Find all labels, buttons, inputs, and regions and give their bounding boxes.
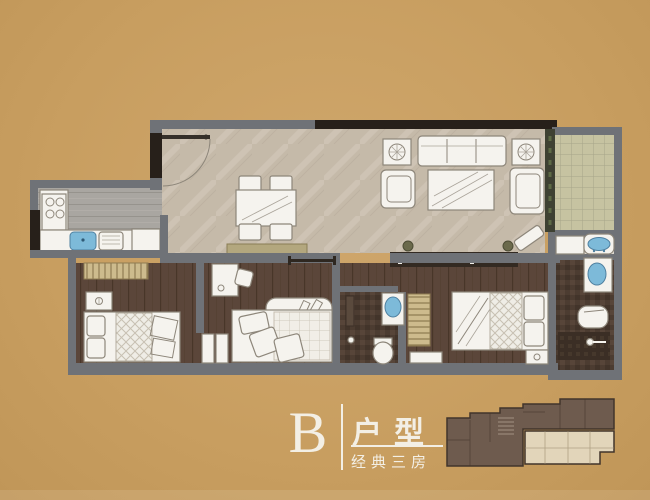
door-leaf	[162, 135, 210, 139]
sliding-door-track	[288, 259, 336, 262]
floor-decor	[503, 241, 513, 251]
key-plan-other-units	[525, 431, 614, 464]
bathtub-water	[588, 238, 610, 251]
wardrobe	[408, 294, 430, 346]
pillow	[524, 322, 544, 346]
balcony-glass-door	[545, 129, 555, 232]
drain	[348, 337, 354, 343]
dining-chair	[270, 224, 292, 240]
floor-decor	[403, 241, 413, 251]
unit-letter: B	[278, 398, 338, 468]
floor-plan	[30, 120, 622, 380]
low-cabinet	[216, 334, 228, 363]
sideboard	[227, 244, 307, 254]
wardrobe	[84, 263, 148, 279]
key-plan	[447, 399, 614, 466]
dining-table	[236, 190, 296, 226]
vertical-divider	[341, 404, 343, 470]
horizontal-divider	[351, 445, 443, 447]
sofa-three-seat	[418, 136, 506, 166]
pillow	[87, 338, 105, 358]
shower-head-icon	[587, 339, 594, 346]
balcony-floor	[555, 135, 614, 232]
pillow	[87, 316, 105, 336]
bathtub-room	[556, 234, 614, 254]
toilet	[373, 342, 393, 364]
nightstand	[526, 350, 548, 364]
kitchen-fridge	[132, 229, 160, 251]
quilt	[116, 313, 152, 361]
dining-chair	[239, 224, 261, 240]
low-cabinet	[202, 334, 214, 363]
poster-background: B 户型 经典三房	[0, 0, 650, 500]
sink-basin	[588, 263, 606, 285]
bench	[410, 352, 442, 363]
toilet	[578, 306, 608, 328]
desk	[212, 264, 238, 296]
tub-counter	[556, 236, 584, 254]
plant-icon	[389, 144, 405, 160]
sink-basin	[385, 297, 401, 317]
desk-chair	[234, 268, 253, 287]
pillow	[524, 296, 544, 320]
quilt	[490, 293, 522, 349]
unit-subtitle: 经典三房	[351, 451, 431, 472]
shower-area	[558, 332, 610, 360]
shower-rail	[346, 296, 354, 326]
kitchen-drain-rack	[99, 232, 123, 250]
plant-icon	[518, 144, 534, 160]
